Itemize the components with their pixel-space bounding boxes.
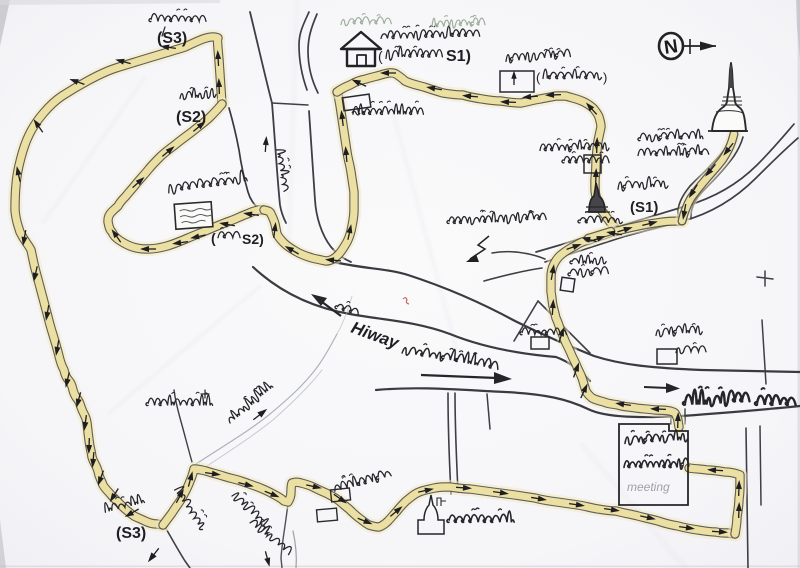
svg-text:): ) bbox=[603, 70, 607, 85]
svg-text:(: ( bbox=[211, 230, 216, 246]
svg-text:S1): S1) bbox=[446, 48, 471, 65]
svg-text:(S1): (S1) bbox=[630, 199, 658, 216]
svg-text:(S3): (S3) bbox=[157, 30, 187, 47]
svg-text:(: ( bbox=[536, 70, 541, 85]
svg-text:meeting: meeting bbox=[627, 480, 670, 494]
svg-text:(S3): (S3) bbox=[116, 525, 146, 542]
svg-text:(: ( bbox=[378, 48, 383, 64]
svg-text:S2): S2) bbox=[242, 231, 264, 247]
svg-text:N: N bbox=[663, 36, 680, 59]
